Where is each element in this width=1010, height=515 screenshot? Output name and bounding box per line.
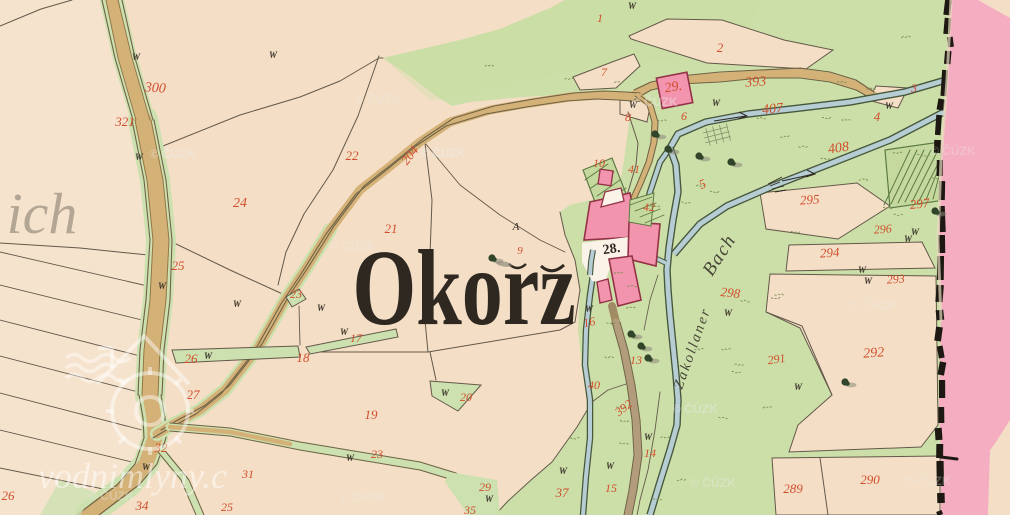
svg-text:408: 408 [827,140,850,158]
svg-text:4: 4 [874,109,881,124]
svg-text:13: 13 [630,353,642,367]
svg-text:26: 26 [2,488,16,503]
svg-text:W: W [132,52,141,62]
svg-text:W: W [858,265,867,275]
svg-text:23: 23 [290,287,302,301]
svg-text:W: W [346,453,355,463]
svg-text:3: 3 [910,81,917,95]
svg-text:W: W [340,327,349,337]
svg-text:27: 27 [187,387,201,402]
svg-text:© ČÚZK: © ČÚZK [930,143,976,158]
svg-text:© ČÚZK: © ČÚZK [355,91,401,106]
svg-text:W: W [628,1,637,11]
svg-text:292: 292 [863,345,885,361]
svg-text:W: W [606,461,615,471]
svg-text:2: 2 [717,40,724,55]
svg-text:Okorz: Okorz [352,228,575,347]
svg-text:41: 41 [628,162,640,176]
svg-text:8: 8 [625,110,631,124]
svg-text:28.: 28. [602,241,621,258]
svg-text:W: W [485,494,494,504]
svg-text:393: 393 [744,74,767,90]
svg-text:W: W [233,299,242,309]
svg-text:W: W [441,388,450,398]
svg-text:293: 293 [886,271,905,286]
svg-text:W: W [911,227,920,237]
svg-text:W: W [135,152,144,162]
svg-text:© ČÚZK: © ČÚZK [850,297,896,312]
svg-text:7: 7 [601,65,608,79]
svg-text:© ČÚZK: © ČÚZK [88,488,134,503]
svg-text:35: 35 [463,503,476,515]
svg-text:W: W [864,276,873,286]
svg-text:42: 42 [643,200,655,214]
svg-text:15: 15 [605,481,617,495]
svg-text:291: 291 [767,351,787,367]
svg-text:W: W [885,101,894,111]
svg-text:6: 6 [681,109,687,123]
svg-text:18: 18 [297,350,311,365]
svg-text:© ČÚZK: © ČÚZK [632,94,678,109]
svg-text:1: 1 [597,11,603,25]
svg-text:321: 321 [114,114,135,129]
svg-text:ich: ich [7,181,78,246]
svg-text:W: W [269,50,278,60]
svg-text:300: 300 [143,80,166,96]
svg-text:© ČÚZK: © ČÚZK [330,238,376,253]
svg-text:© ČÚZK: © ČÚZK [150,146,196,161]
svg-text:W: W [585,304,594,314]
svg-text:W: W [794,382,803,392]
svg-text:W: W [158,281,167,291]
svg-text:W: W [724,308,733,318]
svg-text:29: 29 [479,480,491,494]
svg-text:31: 31 [241,467,254,481]
svg-text:© ČÚZK: © ČÚZK [672,401,718,416]
svg-text:40: 40 [588,378,600,392]
svg-text:298: 298 [720,284,741,301]
svg-text:© ČÚZK: © ČÚZK [690,475,736,490]
svg-text:24: 24 [233,196,247,211]
svg-text:26: 26 [185,351,199,366]
svg-text:20: 20 [460,390,472,404]
svg-text:23: 23 [371,447,383,461]
svg-text:25: 25 [172,258,186,273]
svg-text:290: 290 [860,472,880,487]
svg-text:W: W [712,98,721,108]
svg-text:A: A [512,221,520,233]
svg-text:296: 296 [873,221,892,236]
svg-text:37: 37 [555,485,570,500]
svg-text:W: W [317,303,326,313]
svg-text:289: 289 [783,481,803,496]
svg-text:W: W [559,466,568,476]
svg-text:© ČÚZK: © ČÚZK [420,145,466,160]
svg-text:297: 297 [909,195,930,212]
svg-text:22: 22 [346,148,360,163]
svg-text:295: 295 [799,191,820,207]
svg-text:14: 14 [644,446,656,460]
svg-text:10: 10 [593,156,605,170]
svg-text:25: 25 [221,500,233,514]
svg-text:© ČÚZK: © ČÚZK [905,473,951,488]
svg-text:© ČÚZK: © ČÚZK [340,489,386,504]
svg-text:W: W [644,432,653,442]
svg-text:29.: 29. [663,79,683,97]
svg-text:407: 407 [761,101,784,118]
svg-text:W: W [204,351,213,361]
svg-text:34: 34 [135,498,150,513]
svg-text:19: 19 [365,407,379,422]
svg-text:294: 294 [819,244,840,260]
